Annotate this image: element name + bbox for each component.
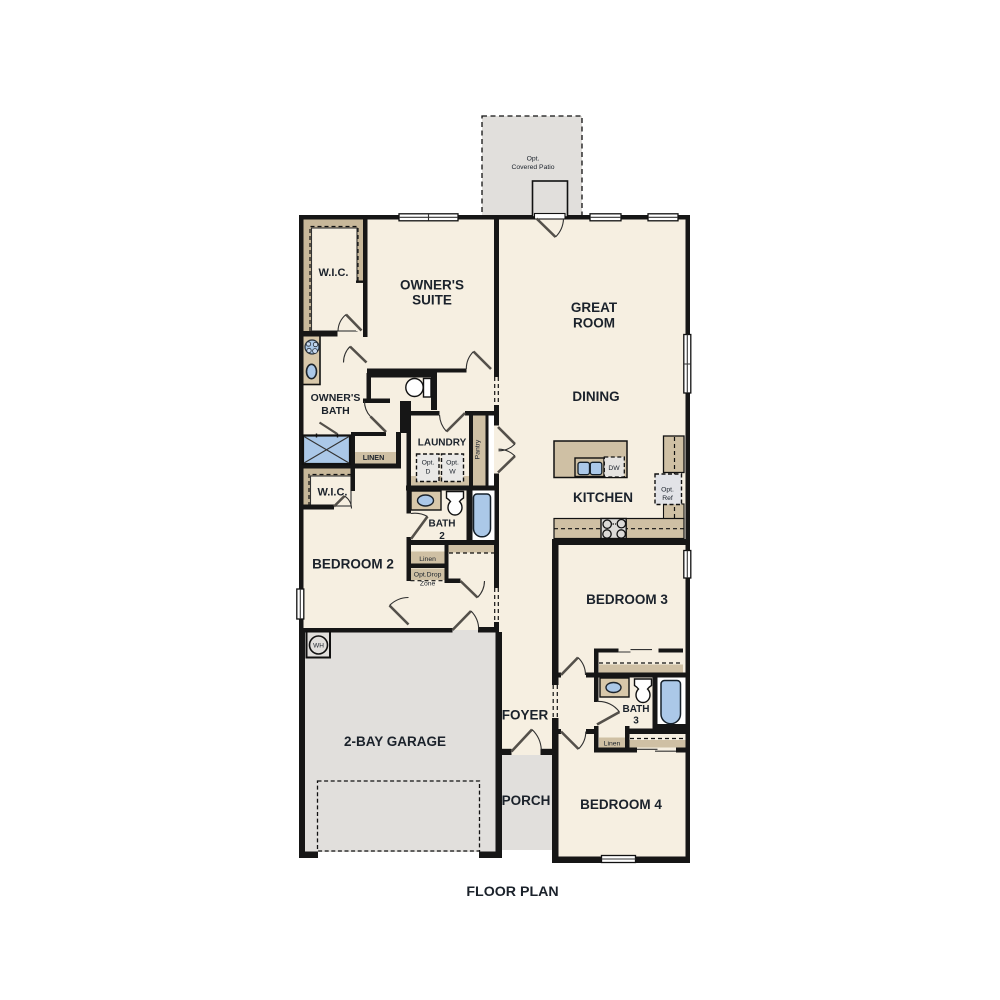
svg-text:DINING: DINING [572,389,619,404]
svg-text:D: D [426,469,431,476]
svg-text:BATH: BATH [428,519,455,530]
svg-text:WH: WH [313,643,324,650]
svg-text:Opt.: Opt. [661,487,674,494]
svg-text:SUITE: SUITE [412,293,452,308]
svg-text:W: W [449,469,456,476]
svg-text:OWNER'S: OWNER'S [400,278,464,293]
svg-text:2: 2 [439,531,445,542]
svg-text:Opt.: Opt. [446,460,459,467]
svg-text:Pantry: Pantry [474,439,481,459]
svg-text:FOYER: FOYER [502,708,549,723]
svg-text:Opt.: Opt. [422,460,435,467]
svg-text:Ref: Ref [662,495,673,502]
svg-text:FLOOR PLAN: FLOOR PLAN [466,884,558,900]
svg-text:GREAT: GREAT [571,300,618,315]
svg-text:KITCHEN: KITCHEN [573,490,633,505]
svg-text:OWNER'S: OWNER'S [311,392,361,404]
svg-text:W.I.C.: W.I.C. [319,267,349,279]
svg-text:BEDROOM 4: BEDROOM 4 [580,797,662,812]
svg-text:ROOM: ROOM [573,316,615,331]
svg-text:PORCH: PORCH [502,793,551,808]
svg-text:Zone: Zone [420,581,436,588]
svg-text:BATH: BATH [321,405,349,417]
svg-text:DW: DW [608,465,620,472]
svg-text:3: 3 [633,716,639,727]
svg-text:Opt.: Opt. [527,156,540,163]
svg-text:Opt.Drop: Opt.Drop [414,572,442,579]
svg-text:LINEN: LINEN [363,453,385,462]
svg-text:BEDROOM 3: BEDROOM 3 [586,592,668,607]
svg-text:Linen: Linen [604,741,621,748]
svg-text:Linen: Linen [419,556,436,563]
svg-text:LAUNDRY: LAUNDRY [418,438,467,449]
svg-text:BATH: BATH [622,704,649,715]
svg-text:2-BAY GARAGE: 2-BAY GARAGE [344,734,446,749]
svg-text:BEDROOM 2: BEDROOM 2 [312,557,394,572]
svg-text:Covered Patio: Covered Patio [511,164,554,171]
svg-text:W.I.C.: W.I.C. [318,486,348,498]
